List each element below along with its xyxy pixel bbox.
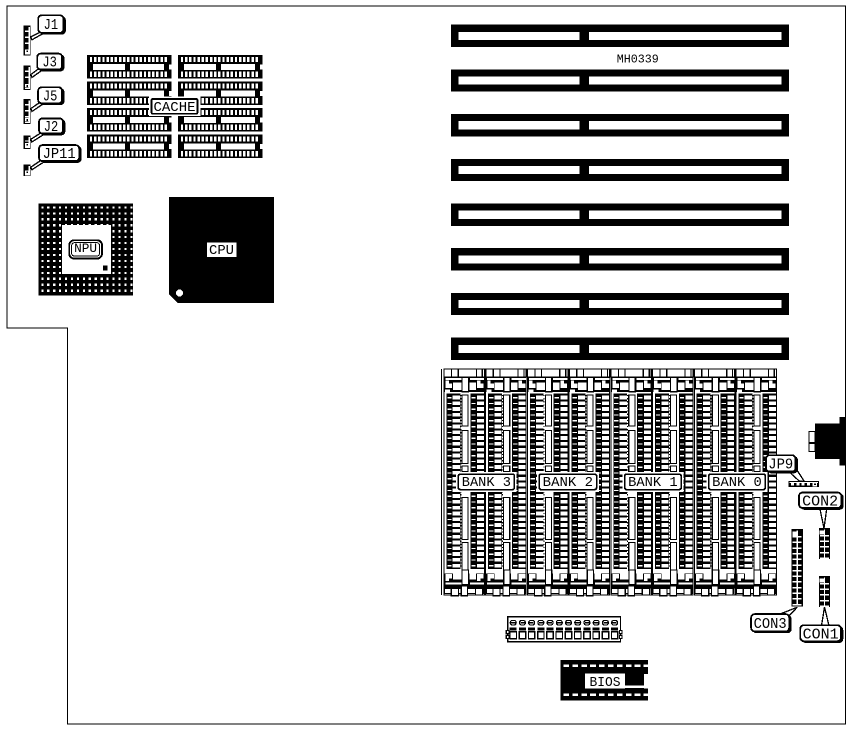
svg-text:J1: J1 [44,17,59,34]
svg-text:BANK 0: BANK 0 [712,476,762,491]
svg-text:NPU: NPU [74,242,97,256]
svg-text:CPU: CPU [209,244,234,259]
svg-text:CON2: CON2 [802,493,838,510]
svg-text:BIOS: BIOS [590,676,621,691]
svg-text:J3: J3 [42,55,57,72]
svg-text:JP11: JP11 [43,146,76,163]
svg-text:CACHE: CACHE [154,101,196,116]
svg-text:MH0339: MH0339 [617,53,659,66]
svg-text:J5: J5 [43,88,58,105]
svg-text:CON3: CON3 [754,616,787,633]
svg-text:CON1: CON1 [803,626,839,643]
svg-text:BANK 2: BANK 2 [543,476,593,491]
svg-text:J2: J2 [44,119,59,136]
svg-text:BANK 3: BANK 3 [462,476,511,491]
svg-text:JP9: JP9 [768,457,793,474]
svg-text:BANK 1: BANK 1 [628,476,678,491]
